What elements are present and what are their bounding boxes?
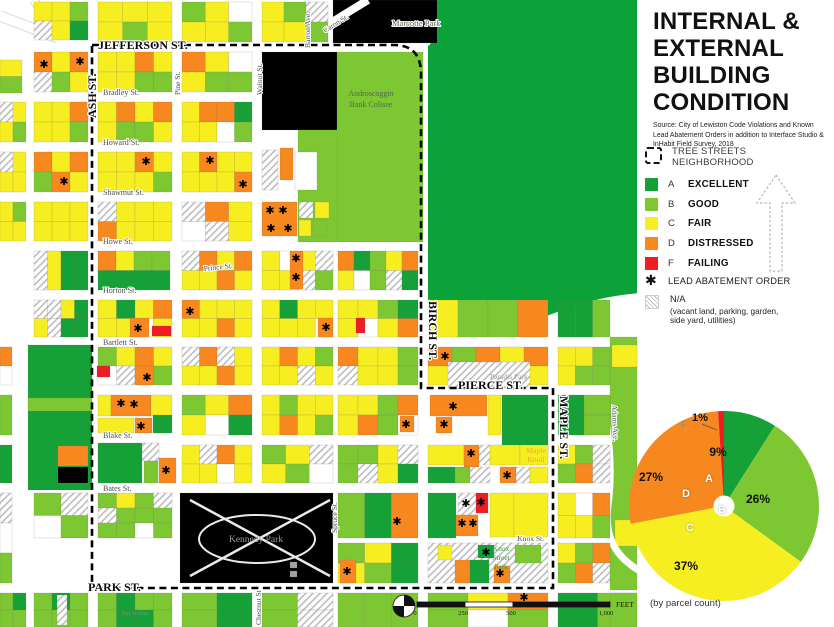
lead-abatement-marker: ✱ <box>278 204 287 217</box>
map-label: Marcotte Park <box>392 18 441 28</box>
lead-abatement-marker: ✱ <box>392 515 401 528</box>
page-title: INTERNAL & EXTERNAL BUILDING CONDITION <box>653 8 800 116</box>
dashed-boundary-icon <box>645 147 662 164</box>
lead-abatement-marker: ✱ <box>468 517 477 530</box>
grade-letter: B <box>668 199 688 210</box>
lead-abatement-marker: ✱ <box>440 350 449 363</box>
color-swatch-icon <box>645 217 658 230</box>
lead-abatement-marker: ✱ <box>466 447 475 460</box>
map-label: Street <box>492 553 510 562</box>
map-label: Howard St. <box>103 138 139 147</box>
lead-abatement-marker: ✱ <box>142 371 151 384</box>
map-label: Androscoggin <box>348 89 393 98</box>
hatch-swatch-icon <box>645 295 659 309</box>
pie-slice-D <box>629 411 724 524</box>
grade-letter: C <box>668 218 688 229</box>
legend-row-C: CFAIR <box>645 214 830 234</box>
svg-text:250: 250 <box>458 610 468 617</box>
lead-abatement-marker: ✱ <box>291 271 300 284</box>
lead-abatement-marker: ✱ <box>161 464 170 477</box>
lead-abatement-marker: ✱ <box>205 154 214 167</box>
map-label: Pine St. <box>173 72 182 95</box>
legend-row-F: FFAILING <box>645 253 830 273</box>
title-line: INTERNAL & <box>653 8 800 35</box>
title-line: CONDITION <box>653 89 800 116</box>
grade-letter: F <box>668 258 688 269</box>
map-label: Bank Colisee <box>350 100 393 109</box>
na-note-line: side yard, utilities) <box>670 316 778 326</box>
lead-abatement-marker: ✱ <box>141 155 150 168</box>
map-label: Knox <box>493 544 510 553</box>
pie-label: F <box>681 420 687 431</box>
title-line: BUILDING <box>653 62 800 89</box>
lead-abatement-marker: ✱ <box>238 178 247 191</box>
lead-abatement-marker: ✱ <box>401 418 410 431</box>
tree-streets-label: TREE STREETS NEIGHBORHOOD <box>672 146 754 168</box>
lead-abatement-marker: ✱ <box>448 400 457 413</box>
map-label: Park St Alley <box>122 612 149 617</box>
lead-abatement-marker: ✱ <box>116 397 125 410</box>
pie-caption: (by parcel count) <box>650 598 721 609</box>
map-label: BIRCH ST. <box>426 301 440 360</box>
condition-legend: AEXCELLENTBGOODCFAIRDDISTRESSEDFFAILING <box>645 175 830 273</box>
grade-label: FAILING <box>688 258 729 269</box>
map-label: ASH ST. <box>85 74 99 118</box>
lead-abatement-marker: ✱ <box>476 496 485 509</box>
lead-abatement-marker: ✱ <box>266 222 275 235</box>
legend-row-A: AEXCELLENT <box>645 175 830 195</box>
map-label: Spruce St. <box>330 502 339 533</box>
parcel-condition-map: ✱✱✱✱✱✱✱✱✱✱✱✱✱✱✱✱✱✱✱✱✱✱✱✱✱✱✱✱✱✱✱✱✱✱✱JEFFE… <box>0 0 640 627</box>
compass-icon <box>393 595 415 617</box>
map-label: Bradley St. <box>103 88 139 97</box>
map-label: Shawmut St. <box>103 188 144 197</box>
lead-abatement-marker: ✱ <box>265 204 274 217</box>
grade-label: GOOD <box>688 199 719 210</box>
grade-letter: A <box>668 179 688 190</box>
map-label: Horton St. <box>103 286 136 295</box>
pie-label: 37% <box>674 559 698 573</box>
color-swatch-icon <box>645 257 658 270</box>
pie-label: D <box>682 488 690 500</box>
grade-letter: D <box>668 238 688 249</box>
map-label: Chestnut St <box>254 589 263 625</box>
lead-abatement-marker: ✱ <box>129 398 138 411</box>
legend-row-D: DDISTRESSED <box>645 234 830 254</box>
lead-abatement-marker: ✱ <box>502 469 511 482</box>
pie-label: 27% <box>639 470 663 484</box>
lead-abatement-marker: ✱ <box>461 497 470 510</box>
lead-abatement-marker: ✱ <box>291 252 300 265</box>
pie-label: C <box>686 522 694 534</box>
map-label: Knoll <box>527 455 544 464</box>
lead-abatement-marker: ✱ <box>321 321 330 334</box>
map-label: Howe St. <box>103 237 133 246</box>
map-label: Barron Ave. <box>303 12 312 48</box>
map-label: Paradis Park <box>490 372 528 381</box>
lead-abatement-marker: ✱ <box>342 565 351 578</box>
pie-label: 1% <box>692 412 708 424</box>
map-label: Walnut St. <box>255 63 264 95</box>
lead-abatement-marker: ✱ <box>457 517 466 530</box>
svg-text:500: 500 <box>506 610 516 617</box>
legend-na: N/A (vacant land, parking, garden, side … <box>645 294 778 326</box>
lead-abatement-marker: ✱ <box>75 55 84 68</box>
asterisk-icon: ✱ <box>645 274 659 288</box>
map-label: Knox St. <box>517 534 544 543</box>
color-swatch-icon <box>645 237 658 250</box>
condition-pie-chart: 1%F9%A26%BCD37%27% <box>622 404 828 610</box>
legend-row-B: BGOOD <box>645 195 830 215</box>
legend-tree-streets: TREE STREETS NEIGHBORHOOD <box>645 146 754 168</box>
building-condition-infographic: ✱✱✱✱✱✱✱✱✱✱✱✱✱✱✱✱✱✱✱✱✱✱✱✱✱✱✱✱✱✱✱✱✱✱✱JEFFE… <box>0 0 834 627</box>
map-label: Bates St. <box>103 484 131 493</box>
map-label: Maple <box>526 446 546 455</box>
pie-label: A <box>705 473 713 485</box>
lead-abatement-marker: ✱ <box>39 58 48 71</box>
svg-text:1,000: 1,000 <box>599 610 614 617</box>
color-swatch-icon <box>645 198 658 211</box>
lead-abatement-marker: ✱ <box>481 546 490 559</box>
na-note-line: (vacant land, parking, garden, <box>670 307 778 317</box>
lead-abatement-marker: ✱ <box>439 418 448 431</box>
map-label: Bartlett St. <box>103 338 138 347</box>
lead-abatement-marker: ✱ <box>185 305 194 318</box>
grade-label: EXCELLENT <box>688 179 749 190</box>
pie-label: B <box>718 504 726 516</box>
north-arrow-icon <box>755 173 799 279</box>
grade-label: FAIR <box>688 218 712 229</box>
title-line: EXTERNAL <box>653 35 800 62</box>
map-label: MAPLE ST. <box>557 396 571 459</box>
map-label: Park <box>494 562 508 571</box>
lead-abatement-marker: ✱ <box>133 322 142 335</box>
map-label: Blake St. <box>103 431 132 440</box>
na-label: N/A (vacant land, parking, garden, side … <box>670 294 778 326</box>
lead-abatement-marker: ✱ <box>59 175 68 188</box>
pie-label: 26% <box>746 492 770 506</box>
map-label: JEFFERSON ST. <box>98 38 188 52</box>
lead-abatement-marker: ✱ <box>283 222 292 235</box>
color-swatch-icon <box>645 178 658 191</box>
map-label: Adams Ave. <box>610 405 620 442</box>
pie-label: 9% <box>709 445 727 459</box>
map-label: PARK ST. <box>88 580 141 594</box>
grade-label: DISTRESSED <box>688 238 754 249</box>
lead-abatement-marker: ✱ <box>136 420 145 433</box>
map-label: Kennedy Park <box>229 535 283 545</box>
